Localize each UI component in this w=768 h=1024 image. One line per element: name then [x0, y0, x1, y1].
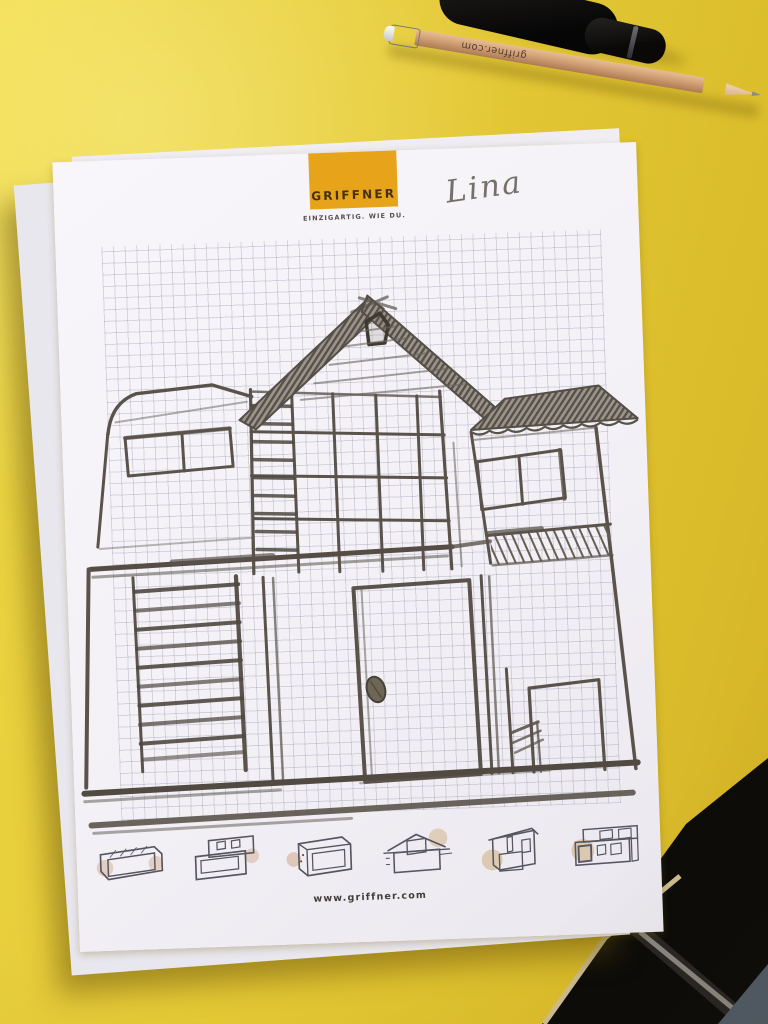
house-thumbnail-2 [187, 831, 265, 886]
house-thumbnail-3 [282, 828, 360, 883]
paper-sheet-top: GRIFFNER EINZIGARTIG. WIE DU. Lina [52, 142, 663, 952]
handwritten-name: Lina [443, 164, 524, 210]
pencil-lead [751, 91, 761, 97]
griffner-logo-banner: GRIFFNER [308, 150, 398, 209]
house-thumbnail-1 [92, 835, 170, 890]
brand-tagline: EINZIGARTIG. WIE DU. [292, 211, 416, 223]
house-thumbnail-5 [472, 822, 550, 877]
graph-grid [101, 229, 621, 820]
pencil-tip [724, 83, 756, 100]
house-thumbnail-4 [377, 825, 455, 880]
house-thumbnail-6 [568, 818, 646, 873]
brand-name: GRIFFNER [309, 186, 397, 203]
house-sketch [101, 229, 621, 836]
website-url: www.griffner.com [260, 888, 480, 907]
